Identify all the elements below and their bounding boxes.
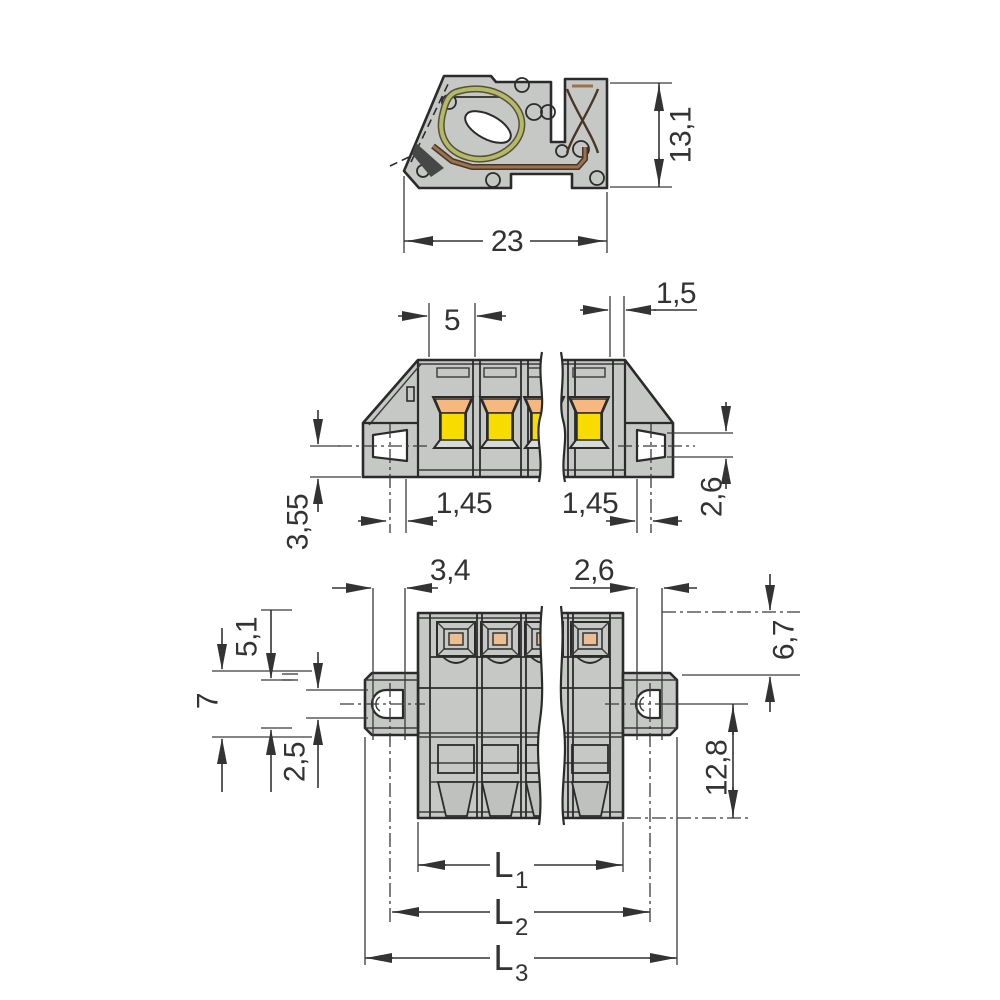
dim-label-section-width: 23 bbox=[491, 225, 523, 258]
dim-label-section-height: 13,1 bbox=[665, 107, 698, 163]
dim-label-l2-sub: 2 bbox=[515, 914, 528, 941]
dim-label-l1-sub: 1 bbox=[515, 867, 528, 894]
dim-label-l1: L bbox=[493, 844, 513, 885]
dim-height-left: 3,55 bbox=[282, 410, 362, 550]
dim-left-lower: 2,5 bbox=[279, 652, 369, 788]
front-break bbox=[538, 352, 565, 482]
dim-label-pitch: 5 bbox=[444, 304, 460, 337]
dim-label-body-to-flange: 6,7 bbox=[768, 620, 801, 660]
dim-flange-left: 1,45 bbox=[358, 479, 492, 533]
wire-window bbox=[569, 397, 609, 448]
dim-label-height-left: 3,55 bbox=[282, 494, 315, 550]
dim-label-l2: L bbox=[493, 891, 513, 932]
dim-label-l3-sub: 3 bbox=[515, 960, 528, 987]
dim-label-left-upper: 5,1 bbox=[231, 617, 264, 657]
dim-label-flange-height: 7 bbox=[192, 693, 225, 709]
drawing-canvas: 13,1 23 bbox=[0, 0, 1000, 1000]
dim-label-slot-width-right: 2,6 bbox=[574, 554, 614, 587]
dim-label-slot-width-left: 3,4 bbox=[430, 554, 470, 587]
dim-edge-wall: 1,5 bbox=[580, 277, 697, 357]
plan-view: 3,4 2,6 6,7 12,8 bbox=[192, 554, 801, 987]
dim-flange-right: 1,45 bbox=[562, 479, 682, 533]
dim-label-hole-to-bottom: 12,8 bbox=[701, 740, 734, 796]
dim-length-l2: L 2 bbox=[392, 891, 650, 941]
dim-length-l1: L 1 bbox=[418, 822, 623, 894]
wire-window bbox=[480, 397, 520, 448]
front-view: 5 1,5 1,45 1,45 bbox=[282, 277, 734, 550]
dim-label-l3: L bbox=[493, 937, 513, 978]
wire-window bbox=[433, 397, 473, 448]
dim-label-flange-right: 1,45 bbox=[562, 487, 618, 520]
plan-break bbox=[538, 606, 565, 825]
dim-slot-height: 2,6 bbox=[667, 402, 733, 517]
technical-drawing: 13,1 23 bbox=[0, 0, 1000, 1000]
dim-label-flange-left: 1,45 bbox=[436, 487, 492, 520]
dim-section-height: 13,1 bbox=[610, 83, 698, 187]
dim-label-left-lower: 2,5 bbox=[279, 742, 312, 782]
dim-label-slot-height: 2,6 bbox=[696, 477, 729, 517]
slope-tab bbox=[407, 387, 414, 401]
dim-pitch: 5 bbox=[398, 303, 506, 357]
dim-body-to-flange: 6,7 bbox=[662, 574, 801, 712]
side-section-view: 13,1 23 bbox=[390, 76, 698, 258]
dim-label-edge-wall: 1,5 bbox=[656, 277, 696, 310]
